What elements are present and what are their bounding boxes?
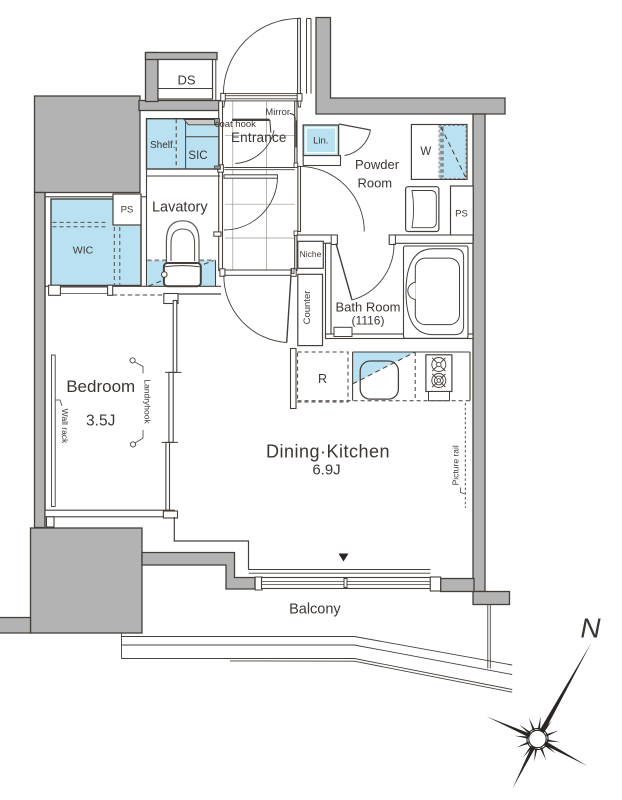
svg-text:WIC: WIC [73,245,94,257]
svg-text:DS: DS [177,73,195,88]
svg-text:Niche: Niche [300,249,322,259]
svg-text:Balcony: Balcony [289,602,341,618]
svg-text:6.9J: 6.9J [312,462,340,479]
svg-text:Picture rail: Picture rail [450,445,460,485]
svg-text:Entrance: Entrance [231,130,287,145]
svg-text:Counter: Counter [302,291,313,325]
svg-text:Bedroom: Bedroom [66,377,135,396]
svg-text:SIC: SIC [188,150,207,162]
svg-text:Mirror: Mirror [265,107,290,118]
svg-text:Lavatory: Lavatory [152,199,208,215]
svg-text:Shelf.: Shelf. [150,140,176,151]
svg-text:Powder: Powder [355,157,400,172]
svg-text:N: N [580,613,601,644]
svg-text:Landryhook: Landryhook [143,379,153,424]
svg-text:R: R [318,372,327,386]
svg-text:PS: PS [455,209,468,220]
svg-text:coat hook: coat hook [215,119,256,130]
svg-text:Bath Room: Bath Room [335,300,400,315]
svg-text:(1116): (1116) [352,314,385,328]
svg-text:Dining·Kitchen: Dining·Kitchen [266,442,390,462]
svg-text:Lin.: Lin. [313,136,328,147]
svg-text:Room: Room [357,176,392,191]
svg-text:Wall rack: Wall rack [60,409,70,444]
svg-text:PS: PS [121,205,134,216]
svg-text:W: W [420,146,431,158]
svg-text:3.5J: 3.5J [86,413,115,430]
